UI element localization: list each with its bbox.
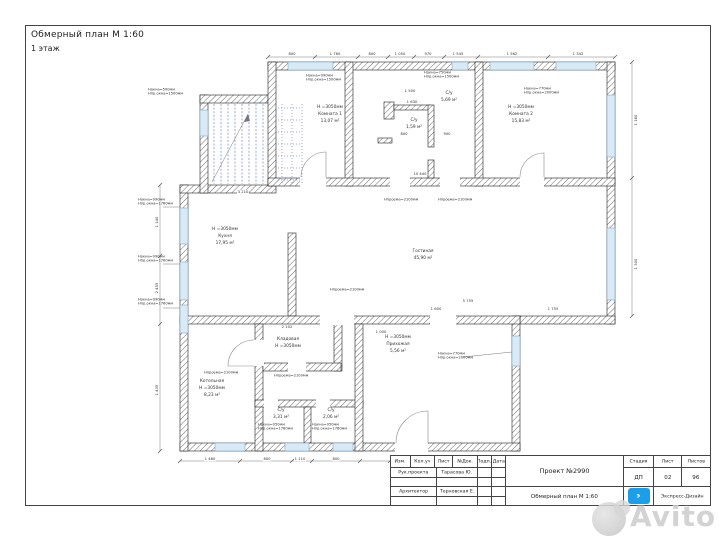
tb-stage-label: Стадия [630, 459, 648, 464]
opening-annotation: Hокна=990ммHпр.окна=1760мм [138, 298, 173, 306]
tb-doc-title: Обмерный план М 1:60 [531, 493, 598, 499]
company-logo-letter: Э [637, 493, 640, 498]
room-label-komnata1: Н =3050мм Комната 1 13,07 м² [298, 104, 362, 125]
tb-col-data: Дата [492, 459, 504, 464]
dimension-label: 800 [263, 457, 271, 461]
dimension-label: 1 110 [294, 457, 306, 461]
room-label-prihozhaya: Н =3050мм Прихожая 5,56 м² [366, 334, 430, 355]
tb-name-1: Тарасова Ю. [442, 470, 473, 475]
room-height: Н =3050мм [375, 335, 421, 340]
room-height: Н =3050мм [202, 227, 248, 232]
dimension-label: 2 102 [281, 325, 293, 329]
room-area: 13,07 м² [307, 119, 353, 124]
room-name: Кладовая [265, 337, 311, 342]
room-area: 45,90 м² [400, 256, 446, 261]
opening-annotation: Hпроема=2100мм [204, 371, 238, 375]
dimension-label: 1 300 [634, 258, 638, 270]
opening-annotation: Hпроема=2100мм [438, 198, 472, 202]
dimension-label: 1 000 [375, 330, 387, 334]
room-name: С/у [391, 118, 437, 123]
staircase [212, 104, 302, 184]
opening-annotation: Hокна=990ммHпр.окна=1760мм [138, 255, 173, 263]
room-name: Прихожая [375, 342, 421, 347]
dimension-label: 3 210 [237, 190, 249, 194]
dimension-label: 2 455 [155, 282, 159, 294]
room-area: 17,95 м² [202, 241, 248, 246]
dimension-label: 1 050 [394, 52, 406, 56]
room-height: Н =3050мм [265, 344, 311, 349]
tb-sheet-value: 02 [664, 474, 671, 480]
drawing-sheet: Обмерный план М 1:60 1 этаж [0, 0, 720, 540]
opening-annotation: Hокна=990ммHпр.окна=1500мм [306, 74, 341, 82]
room-name: Гостиная [400, 249, 446, 254]
dimension-label: 10 440 [413, 172, 427, 176]
room-label-kotelnaya: Котельная Н =3050мм 8,23 м² [180, 378, 244, 399]
dimension-label: 1 500 [404, 89, 416, 93]
tb-sheets-label: Листов [687, 459, 704, 464]
dimension-label: 1 342 [572, 52, 584, 56]
dimension-label: 1 160 [634, 114, 638, 126]
dimension-label: 970 [424, 52, 432, 56]
room-area: 2,06 м² [308, 415, 354, 420]
room-height: Н =3050мм [189, 386, 235, 391]
room-label-su-569: С/у 5,69 м² [417, 90, 481, 104]
dimension-label: 800 [368, 52, 376, 56]
room-label-su-159: С/у 1,59 м² [382, 117, 446, 131]
opening-annotation: Hокна=990ммHпр.окна=1760мм [138, 198, 173, 206]
room-height: Н =3050мм [498, 105, 544, 110]
room-area: 15,83 м² [498, 119, 544, 124]
dimension-label: 1 760 [329, 52, 341, 56]
tb-col-koluch: Кол.уч [414, 459, 430, 464]
opening-annotation: Hокна=500ммHпр.окна=1500мм [148, 88, 183, 96]
tb-col-izm: Изм. [395, 459, 406, 464]
opening-annotation: Hпроема=2100мм [330, 288, 364, 292]
room-name: С/у [308, 408, 354, 413]
room-name: Комната 2 [498, 112, 544, 117]
room-label-kuhnya: Н =3050мм Кухня 17,95 м² [193, 226, 257, 247]
tb-col-list: Лист [438, 459, 450, 464]
tb-sheets-value: 96 [692, 474, 699, 480]
room-name: Кухня [202, 234, 248, 239]
room-name: Комната 1 [307, 112, 353, 117]
opening-annotation: Hокна=750ммHпр.окна=1500мм [424, 71, 459, 79]
opening-annotation: Hокна=770ммHпр.окна=2000мм [524, 87, 559, 95]
room-area: 1,59 м² [391, 125, 437, 130]
tb-role-2: Архитектор [399, 489, 428, 494]
room-height: Н =3050мм [307, 105, 353, 110]
dimension-label: 1 480 [204, 457, 216, 461]
room-area: 8,23 м² [189, 393, 235, 398]
opening-annotation: Hпроема=2100мм [384, 198, 418, 202]
company-logo: Э [628, 488, 650, 504]
dimension-label: 800 [400, 132, 408, 136]
room-name: С/у [426, 91, 472, 96]
tb-stage-value: ДП [634, 474, 642, 480]
dimension-label: 1 545 [452, 52, 464, 56]
tb-role-1: Рук.проекта [398, 470, 428, 475]
tb-col-ndok: №Док. [457, 459, 473, 464]
tb-sheet-label: Лист [662, 459, 674, 464]
room-label-kladovaya: Кладовая Н =3050мм [256, 336, 320, 350]
room-name: С/у [258, 408, 304, 413]
dimension-label: 1 600 [430, 307, 442, 311]
room-label-gostinaya: Гостиная 45,90 м² [391, 248, 455, 262]
dimension-label: 5 755 [462, 299, 474, 303]
room-name: Котельная [189, 379, 235, 384]
dimension-label: 1 140 [155, 216, 159, 228]
tb-col-podp: Подп. [478, 459, 492, 464]
tb-project: Проект №2990 [539, 467, 589, 475]
dimension-label: 900 [443, 132, 451, 136]
title-block: Изм. Кол.уч Лист №Док. Подп. Дата Рук.пр… [390, 455, 710, 505]
room-label-su-206: С/у 2,06 м² [299, 407, 363, 421]
opening-annotation: Hпроема=2100мм [274, 374, 308, 378]
tb-name-2: Терновская Е. [440, 489, 474, 494]
room-area: 3,31 м² [258, 415, 304, 420]
dimension-label: 1 630 [406, 100, 418, 104]
dimension-label: 1 562 [506, 52, 518, 56]
dimension-label: 800 [332, 457, 340, 461]
room-area: 5,56 м² [375, 349, 421, 354]
room-label-komnata2: Н =3050мм Комната 2 15,83 м² [489, 104, 553, 125]
dimension-label: 1 435 [155, 384, 159, 396]
dimension-label: 1 755 [547, 307, 559, 311]
opening-annotation: Hокна=950ммHпр.окна=1760мм [312, 423, 347, 431]
room-area: 5,69 м² [426, 98, 472, 103]
opening-annotation: Hокна=770ммHпр.окна=2000мм [438, 352, 473, 360]
dimension-label: 800 [288, 52, 296, 56]
tb-company: Экспресс-Дизайн [661, 493, 704, 498]
opening-annotation: Hокна=950ммHпр.окна=1760мм [258, 423, 293, 431]
